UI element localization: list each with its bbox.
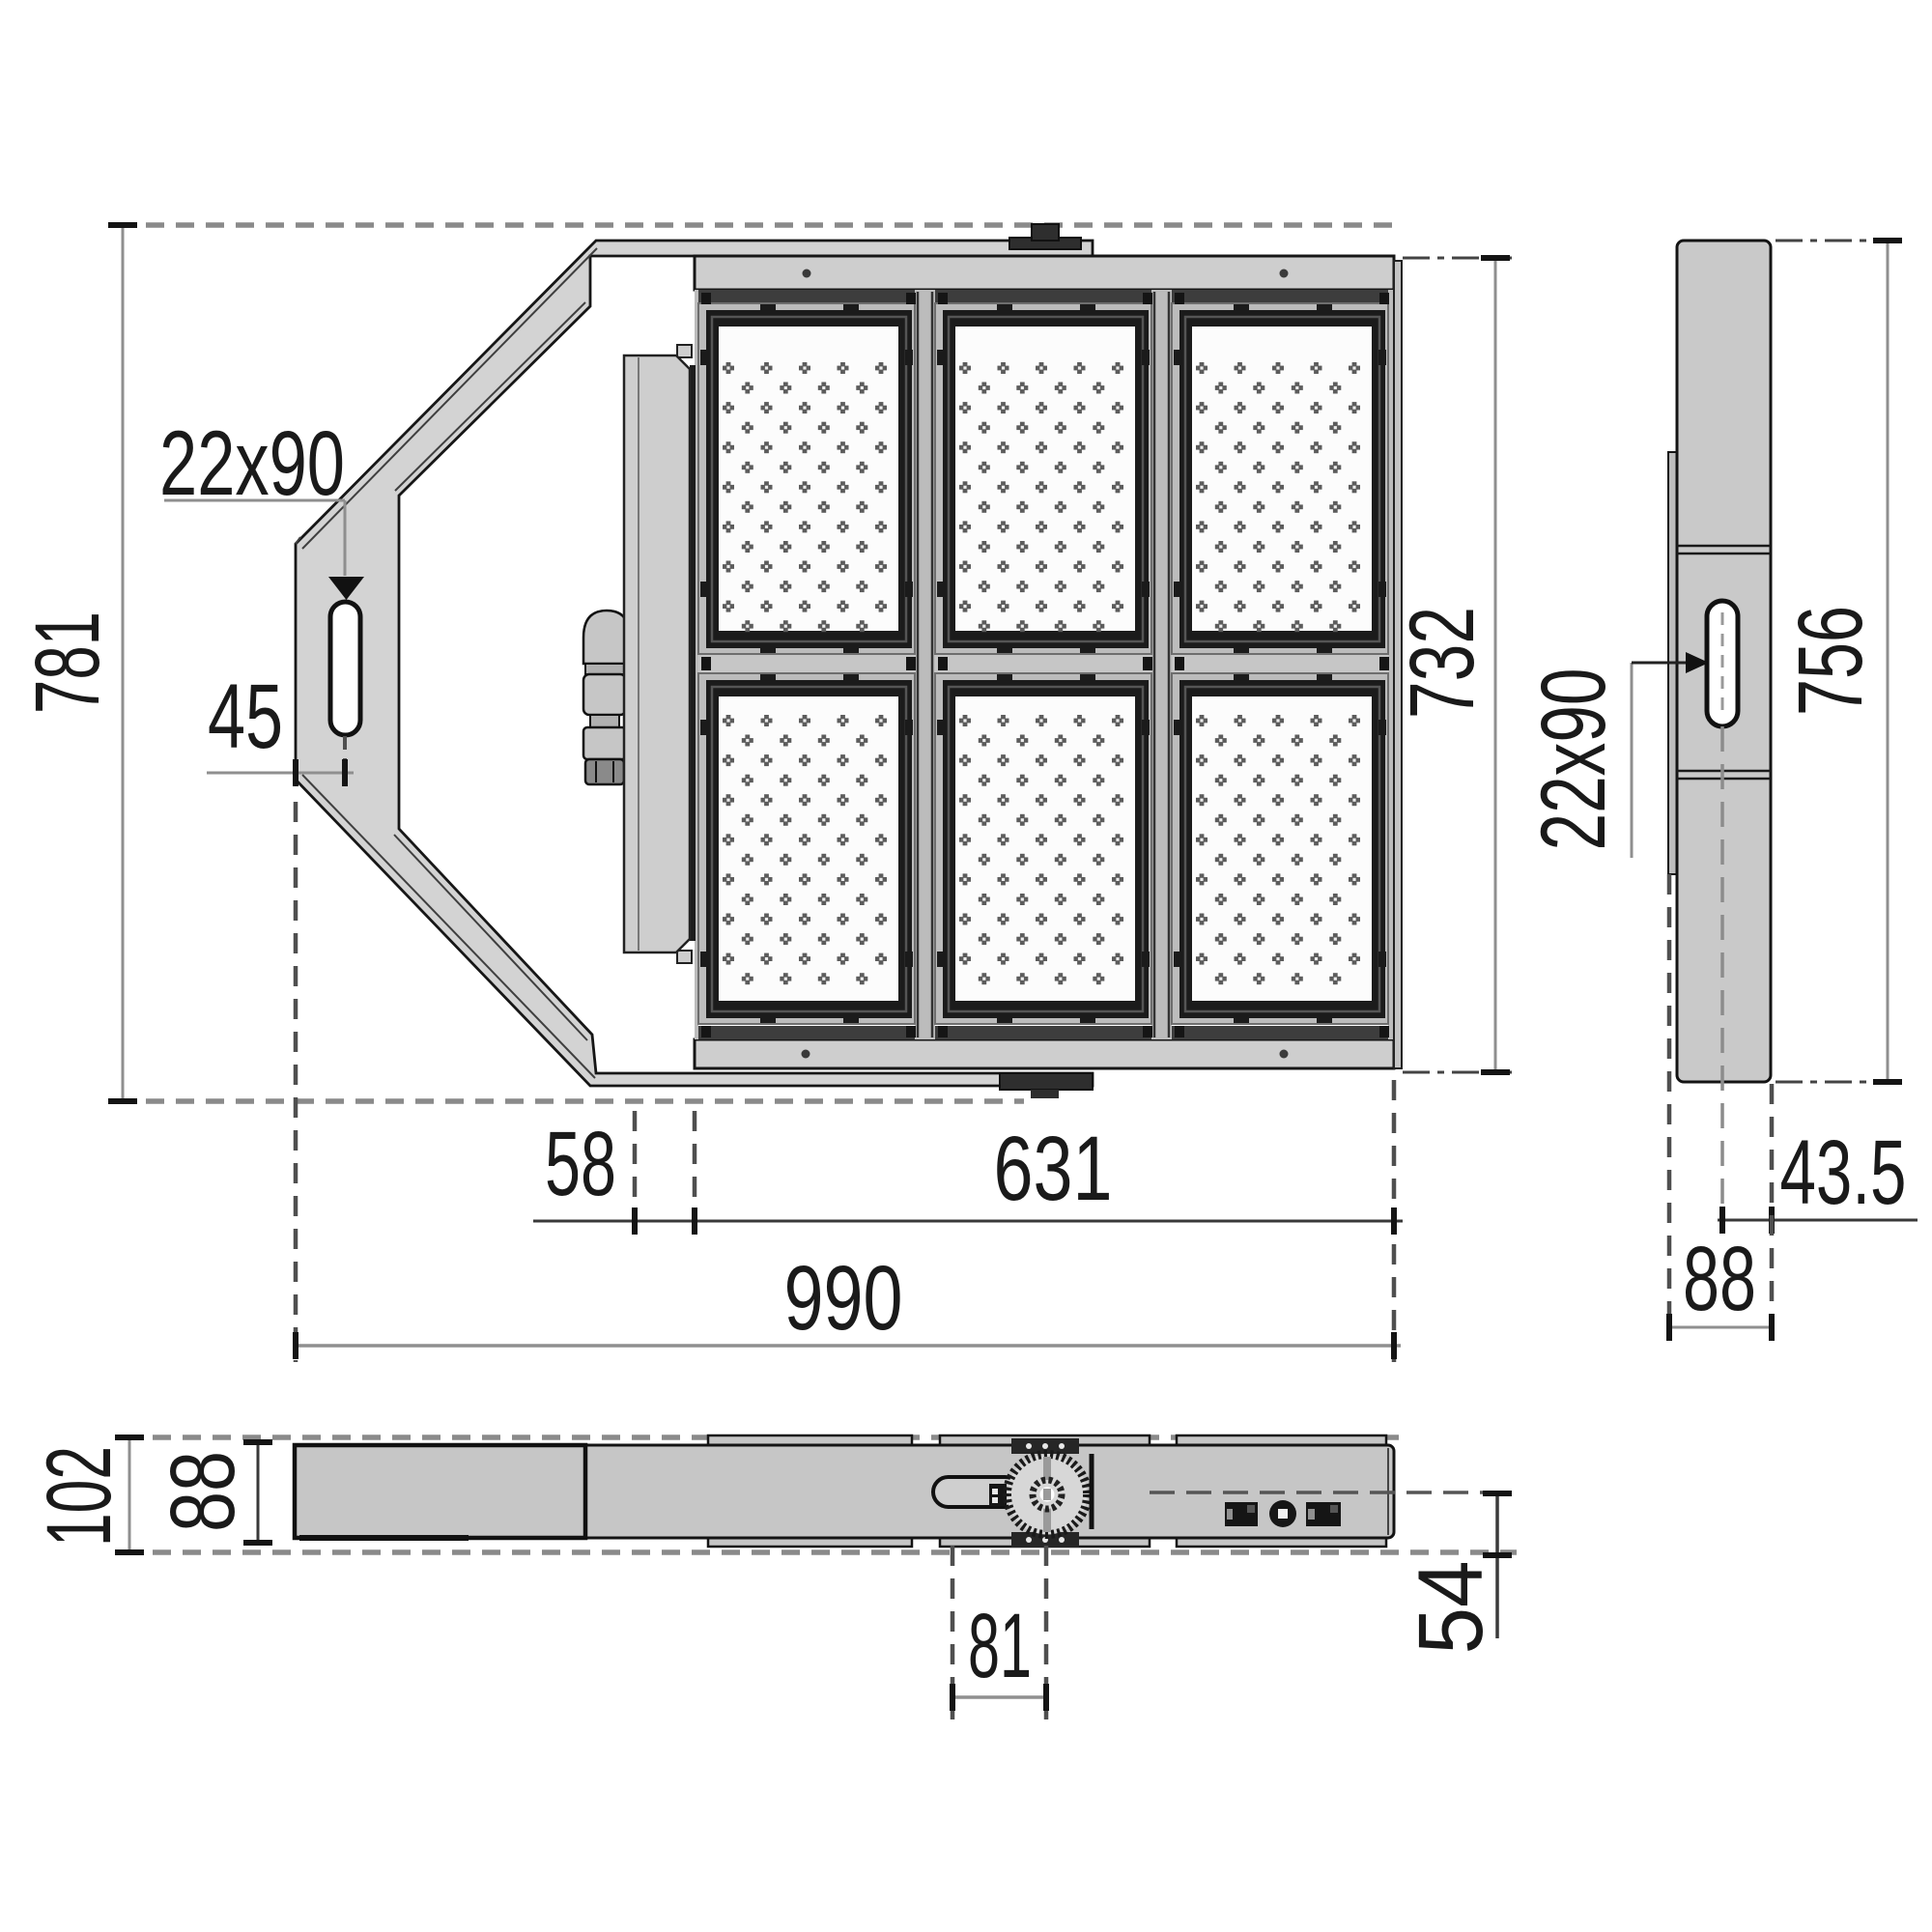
svg-text:81: 81 — [968, 1595, 1032, 1697]
svg-text:58: 58 — [545, 1113, 616, 1215]
svg-text:631: 631 — [994, 1118, 1113, 1220]
svg-text:102: 102 — [28, 1446, 130, 1547]
svg-text:22x90: 22x90 — [1522, 668, 1625, 851]
svg-text:88: 88 — [1683, 1228, 1756, 1330]
svg-text:22x90: 22x90 — [159, 412, 345, 515]
svg-text:43.5: 43.5 — [1780, 1122, 1907, 1224]
svg-text:756: 756 — [1779, 606, 1882, 716]
svg-text:781: 781 — [16, 611, 119, 714]
svg-text:54: 54 — [1400, 1561, 1502, 1655]
svg-text:732: 732 — [1391, 607, 1493, 719]
svg-text:88: 88 — [152, 1451, 254, 1532]
svg-text:990: 990 — [784, 1247, 903, 1350]
svg-text:45: 45 — [208, 666, 283, 768]
